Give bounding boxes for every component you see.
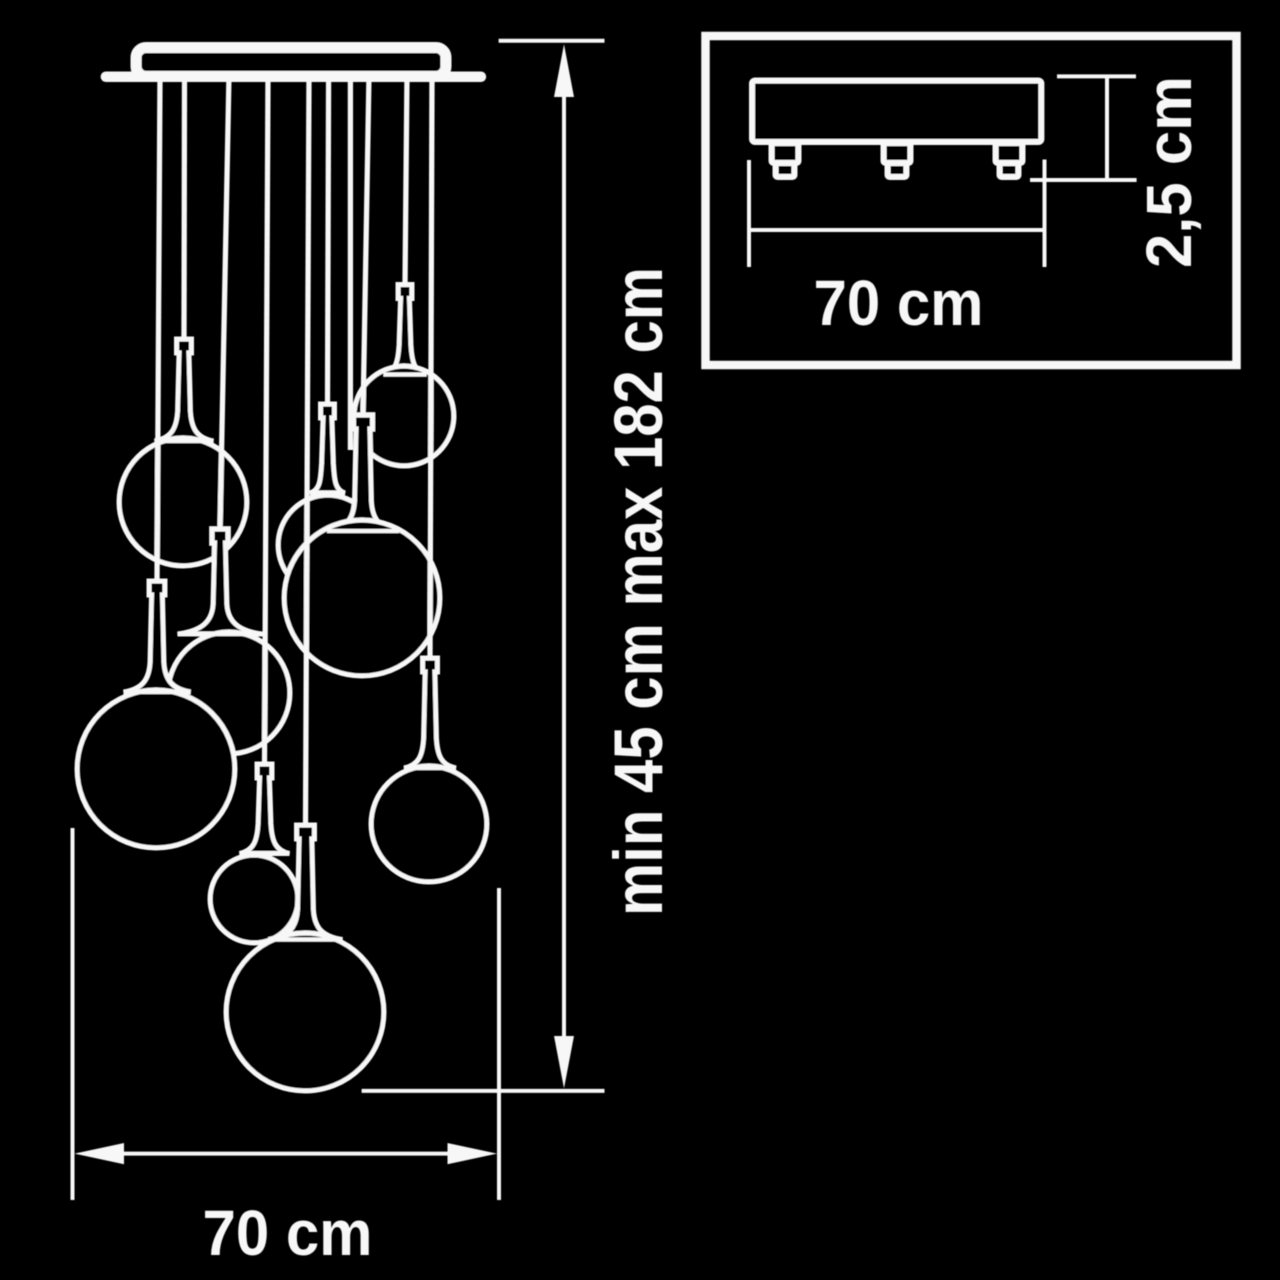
svg-text:min 45 cm max 182 cm: min 45 cm max 182 cm bbox=[600, 267, 677, 916]
svg-text:70 cm: 70 cm bbox=[202, 1198, 372, 1269]
svg-text:2,5 cm: 2,5 cm bbox=[1134, 76, 1205, 268]
svg-text:70 cm: 70 cm bbox=[813, 268, 983, 339]
